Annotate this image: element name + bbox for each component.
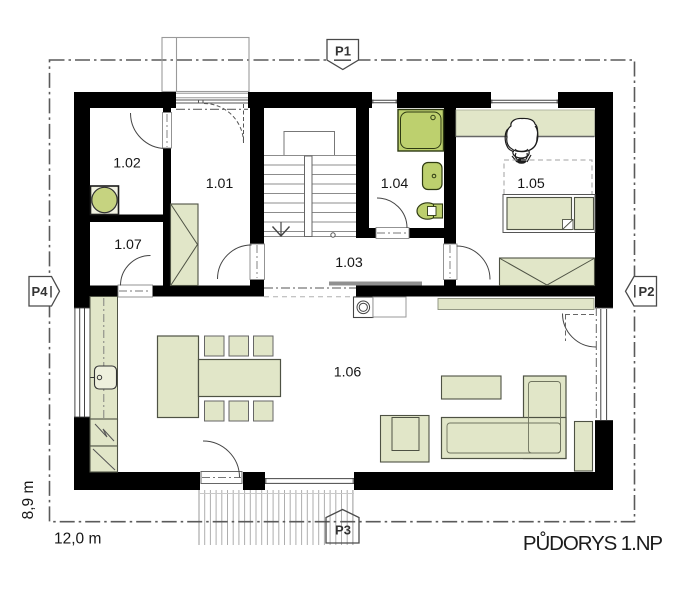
svg-text:1.04: 1.04 bbox=[381, 176, 409, 192]
svg-text:1.01: 1.01 bbox=[206, 176, 234, 192]
svg-text:P3: P3 bbox=[335, 523, 351, 538]
svg-text:1.05: 1.05 bbox=[517, 176, 545, 192]
svg-text:8,9 m: 8,9 m bbox=[20, 481, 37, 520]
svg-text:1.06: 1.06 bbox=[334, 365, 362, 381]
svg-text:1.02: 1.02 bbox=[113, 156, 141, 172]
svg-text:P2: P2 bbox=[639, 284, 655, 299]
svg-text:1.07: 1.07 bbox=[114, 237, 142, 253]
svg-text:12,0 m: 12,0 m bbox=[54, 531, 101, 548]
svg-text:1.03: 1.03 bbox=[335, 255, 363, 271]
svg-text:PŮDORYS 1.NP: PŮDORYS 1.NP bbox=[523, 531, 663, 555]
svg-text:P1: P1 bbox=[335, 44, 351, 59]
svg-text:P4: P4 bbox=[32, 284, 49, 299]
